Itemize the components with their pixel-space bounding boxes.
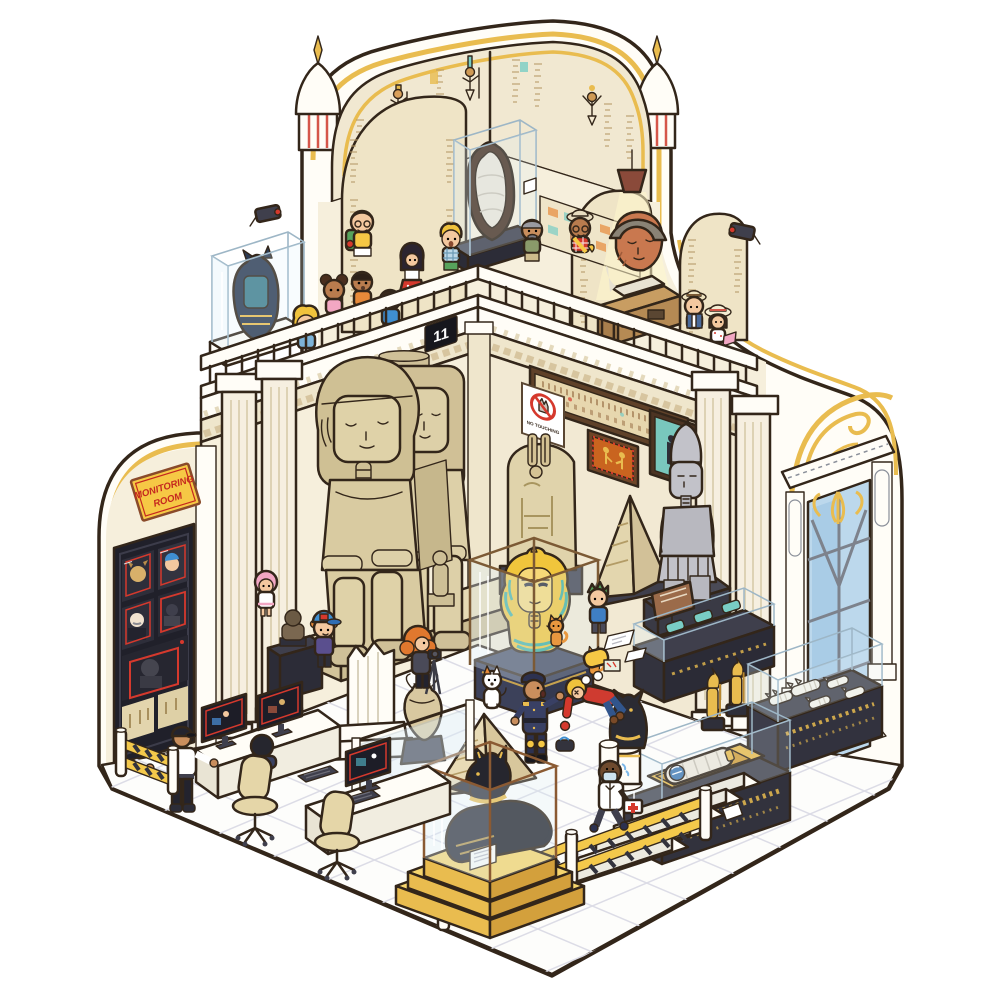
left-dome-finial: [296, 36, 340, 150]
museum-scene: NO TOUCHING 11: [0, 0, 1000, 1000]
security-camera-left[interactable]: [247, 204, 282, 226]
museum-illustration: NO TOUCHING 11: [0, 0, 1000, 1000]
monitoring-room-wing: MONITORING ROOM: [106, 446, 216, 766]
visitor-gray-mustache-tourist[interactable]: [522, 220, 542, 261]
visitor-red-plaid-hat[interactable]: [567, 210, 594, 252]
